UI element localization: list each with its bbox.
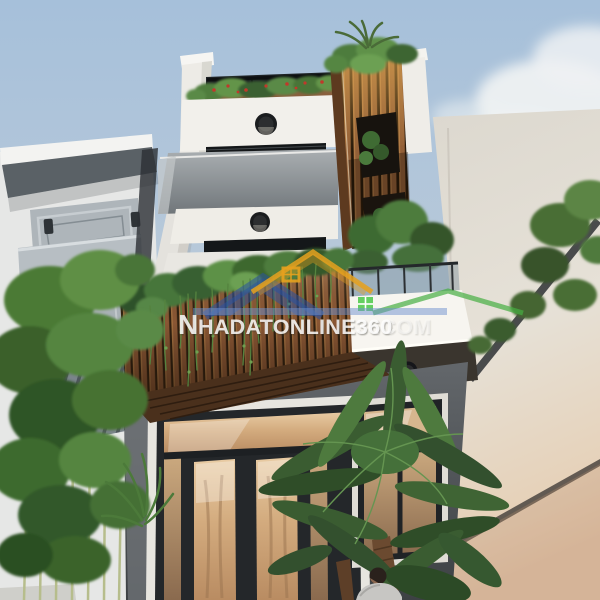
render-canvas: N HADATONLINE360 .COM	[0, 0, 600, 600]
concrete-band-3f	[158, 149, 338, 214]
downlight-2	[250, 212, 270, 232]
watermark-underline-bar	[193, 308, 447, 315]
downlight-1	[255, 113, 277, 135]
entry-sidelight-left	[164, 458, 181, 600]
watermark-brand-initial: N	[178, 309, 198, 340]
watermark-suffix: .COM	[374, 315, 431, 339]
scene-svg: N HADATONLINE360 .COM	[0, 0, 600, 600]
wall-sconce-left	[44, 219, 54, 235]
watermark-brand-rest: HADATONLINE360	[198, 315, 393, 339]
